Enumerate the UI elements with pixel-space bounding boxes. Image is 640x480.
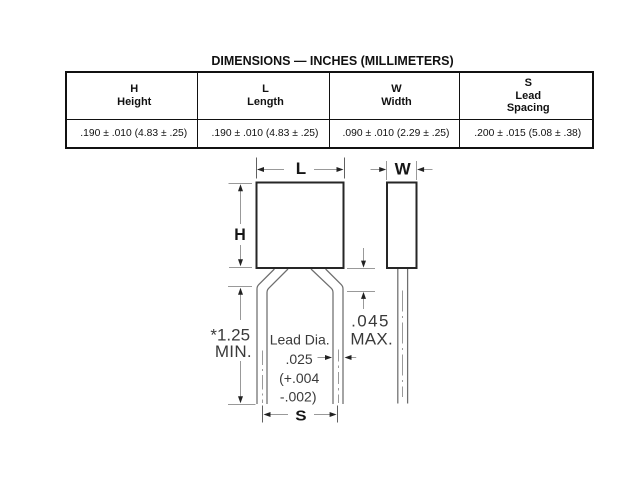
- svg-text:H: H: [234, 225, 246, 244]
- svg-text:-.002): -.002): [280, 388, 317, 404]
- svg-text:.025: .025: [285, 351, 312, 367]
- svg-text:L: L: [296, 159, 306, 178]
- svg-text:MAX.: MAX.: [350, 329, 393, 348]
- svg-text:.045: .045: [351, 312, 390, 331]
- svg-text:S: S: [295, 407, 306, 424]
- svg-text:(+.004: (+.004: [279, 370, 319, 386]
- svg-text:MIN.: MIN.: [215, 342, 252, 361]
- svg-text:W: W: [395, 159, 412, 178]
- svg-text:Lead Dia.: Lead Dia.: [270, 331, 330, 347]
